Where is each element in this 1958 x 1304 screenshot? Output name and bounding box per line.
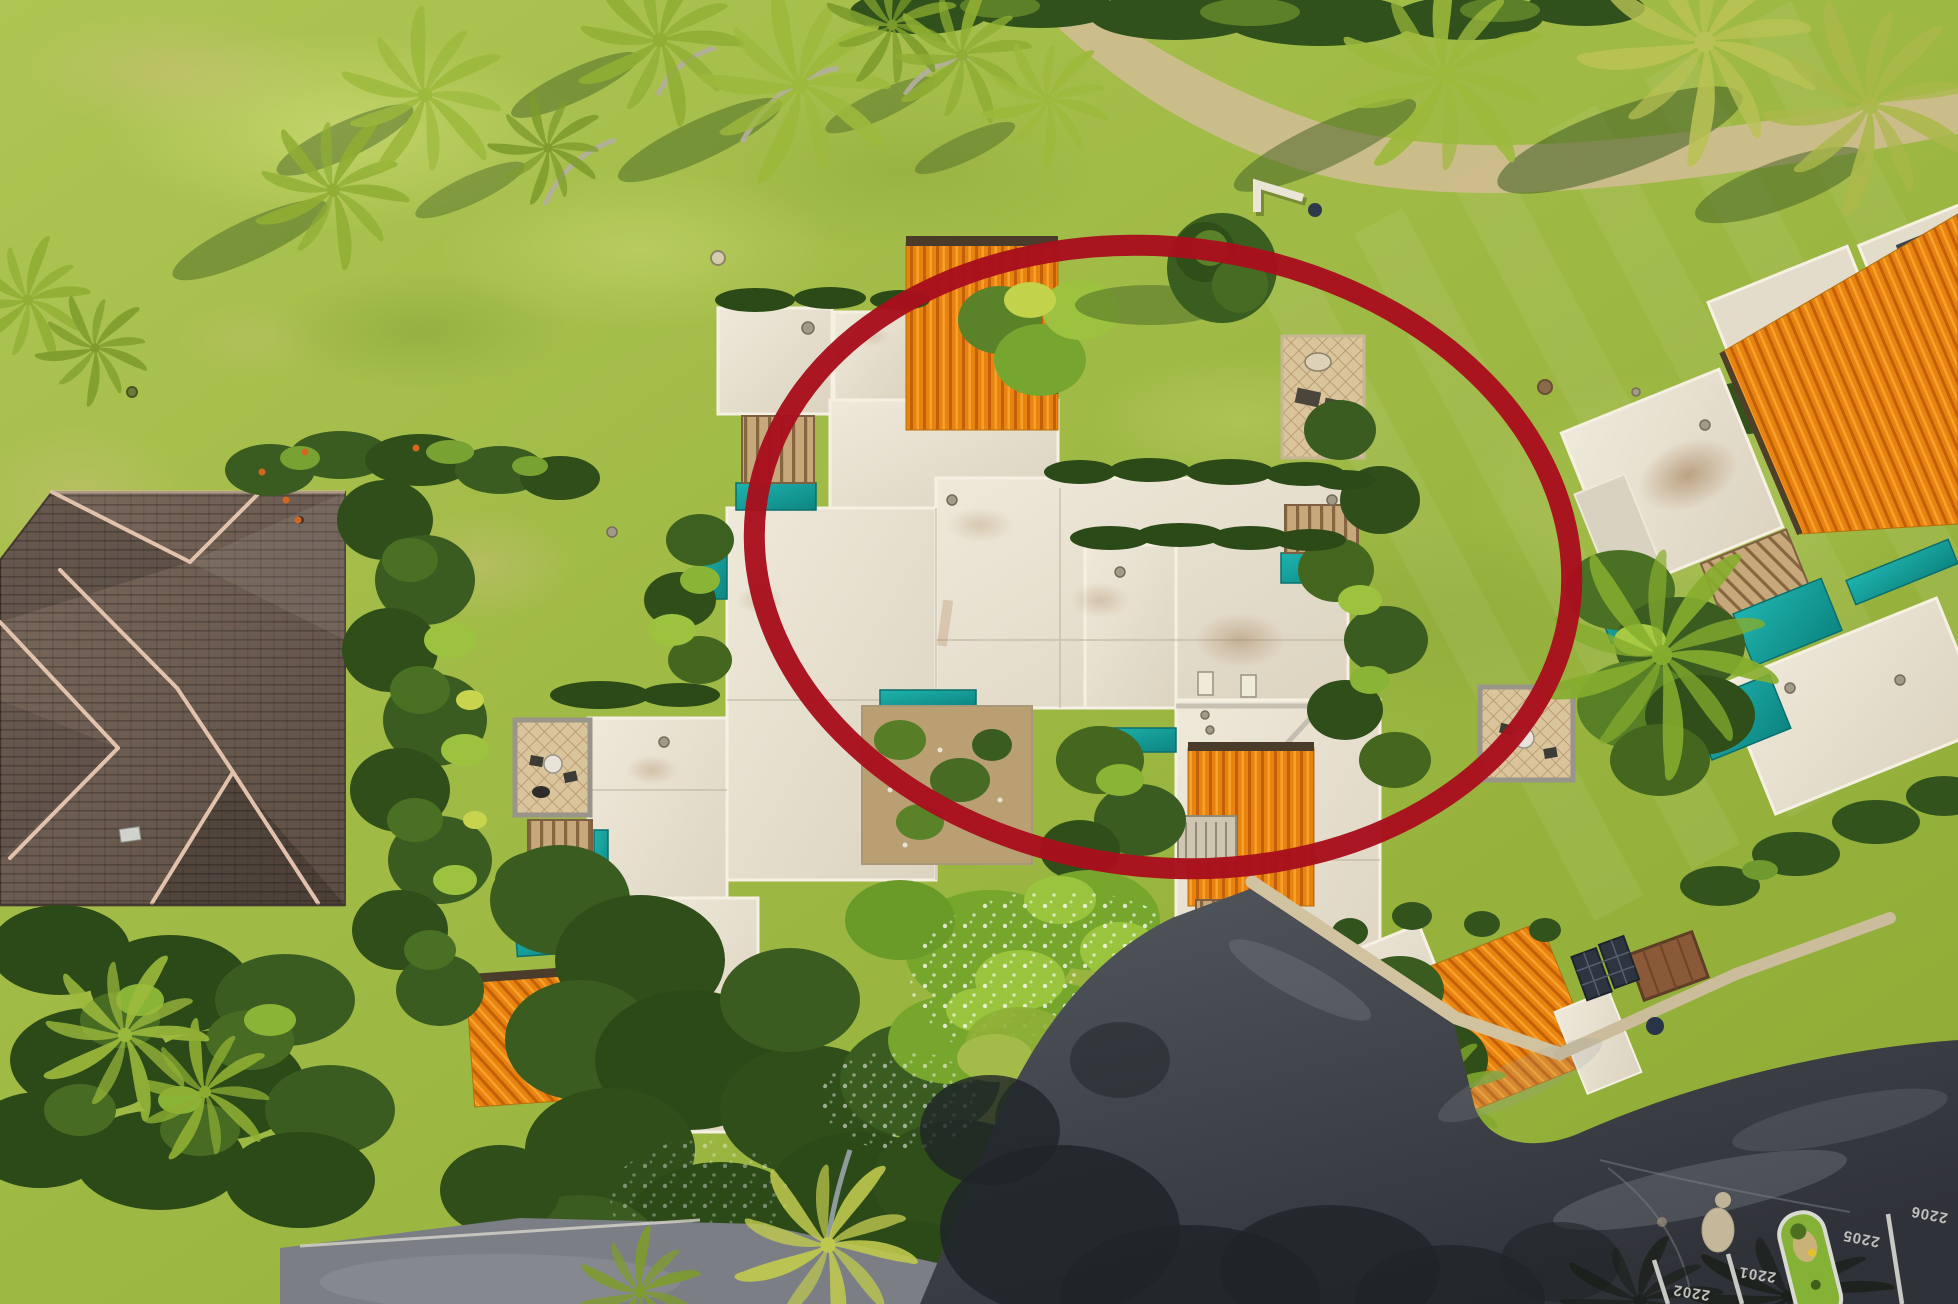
aerial-photo-stage: 2202 2201 2205 2206 [0, 0, 1958, 1304]
skylight [119, 827, 141, 843]
patio-table [544, 755, 562, 773]
balcony-building-b [515, 720, 590, 815]
clubhouse-brown-roof [0, 492, 345, 905]
patio-table [1305, 353, 1331, 371]
aerial-photograph: 2202 2201 2205 2206 [0, 0, 1958, 1304]
dark-object [1308, 203, 1322, 217]
sand-patch [1702, 1208, 1734, 1252]
blue-object [1646, 1017, 1664, 1035]
